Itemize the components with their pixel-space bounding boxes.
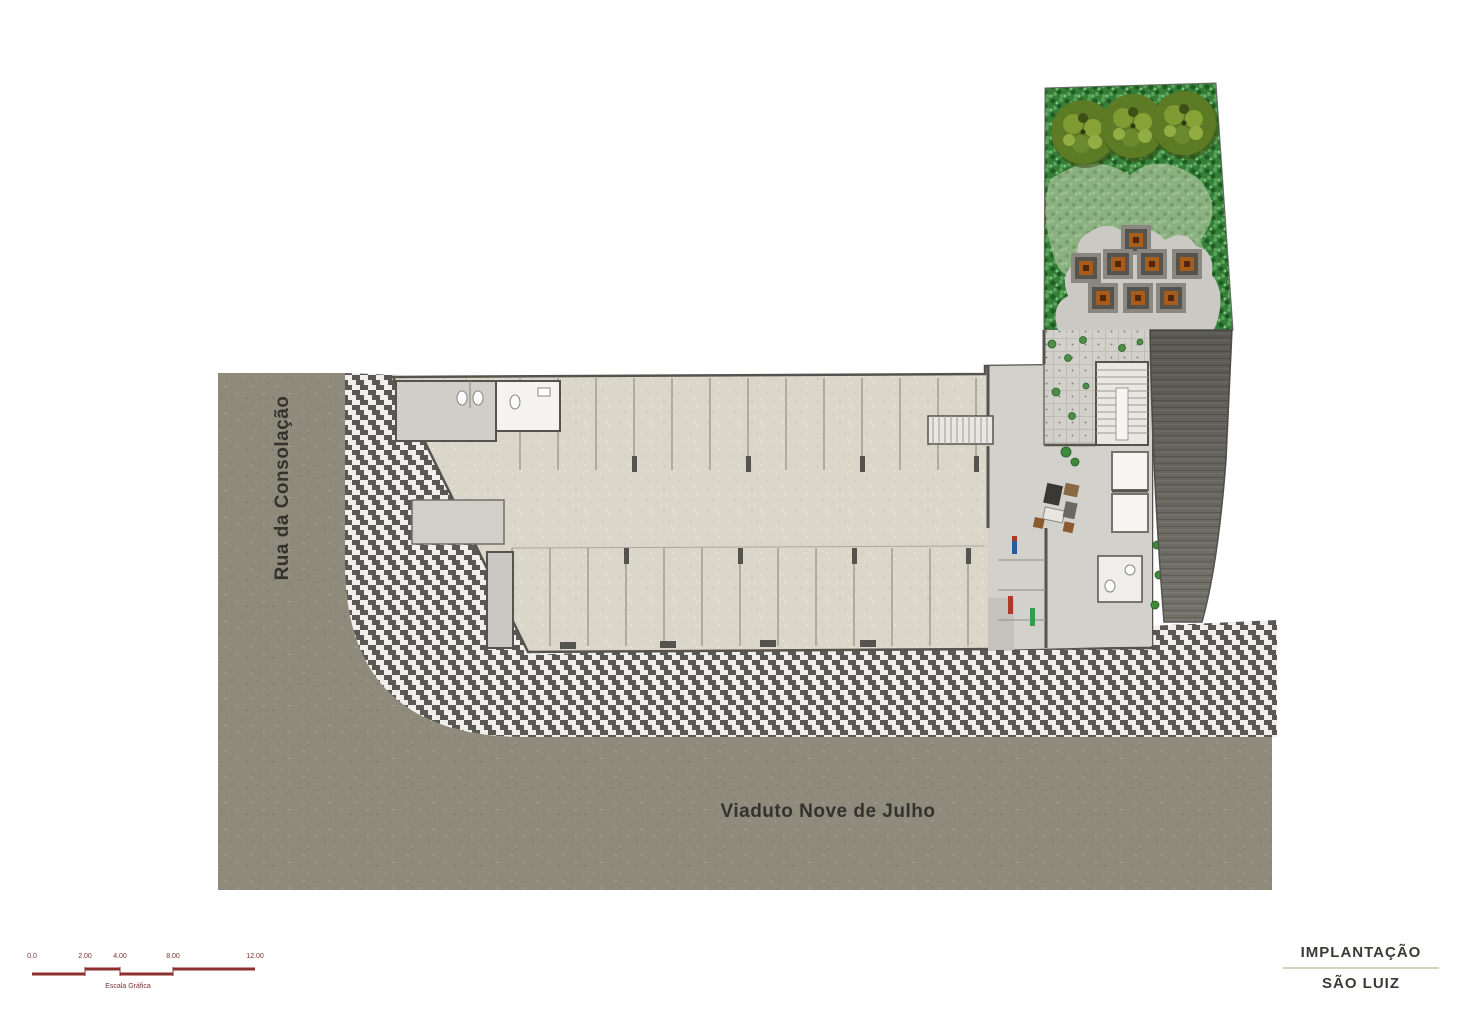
scale-mark-3: 8.00 <box>166 953 180 960</box>
service-rooms <box>396 381 560 441</box>
street-label-rua-da-consolacao: Rua da Consolação <box>272 396 294 581</box>
scale-mark-1: 2.00 <box>78 953 92 960</box>
garden-trees <box>1051 91 1219 168</box>
scale-mark-2: 4.00 <box>113 953 127 960</box>
street-label-viaduto-nove-de-julho: Viaduto Nove de Julho <box>721 801 936 823</box>
title-block: IMPLANTAÇÃO SÃO LUIZ <box>1283 944 1439 992</box>
staircase-hall <box>928 416 993 444</box>
scale-mark-0: 0.0 <box>27 953 37 960</box>
drawing-subtitle: SÃO LUIZ <box>1283 975 1439 992</box>
scale-caption: Escala Gráfica <box>105 983 151 990</box>
lobby-bathroom <box>1098 556 1142 602</box>
elevators <box>1112 452 1148 532</box>
title-divider <box>1283 967 1439 969</box>
staircase-plaza <box>1096 362 1148 445</box>
scale-bar <box>32 967 255 976</box>
scale-mark-4: 12.00 <box>246 953 264 960</box>
vehicle-ramp <box>1150 330 1232 622</box>
site-plan-canvas <box>0 0 1481 1024</box>
drawing-title: IMPLANTAÇÃO <box>1283 944 1439 961</box>
